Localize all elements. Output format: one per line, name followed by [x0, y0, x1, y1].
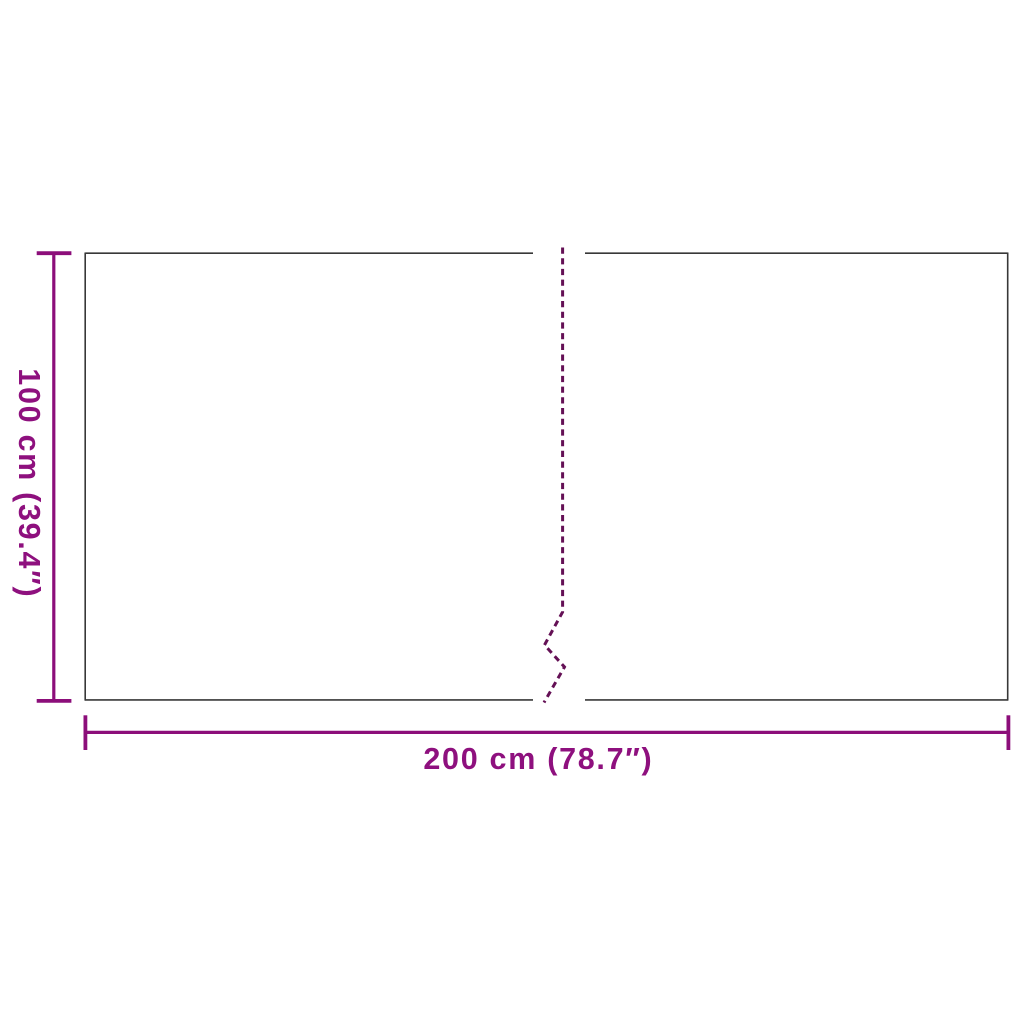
svg-text:100 cm (39.4″): 100 cm (39.4″) [12, 368, 46, 598]
svg-text:200 cm (78.7″): 200 cm (78.7″) [423, 742, 653, 776]
